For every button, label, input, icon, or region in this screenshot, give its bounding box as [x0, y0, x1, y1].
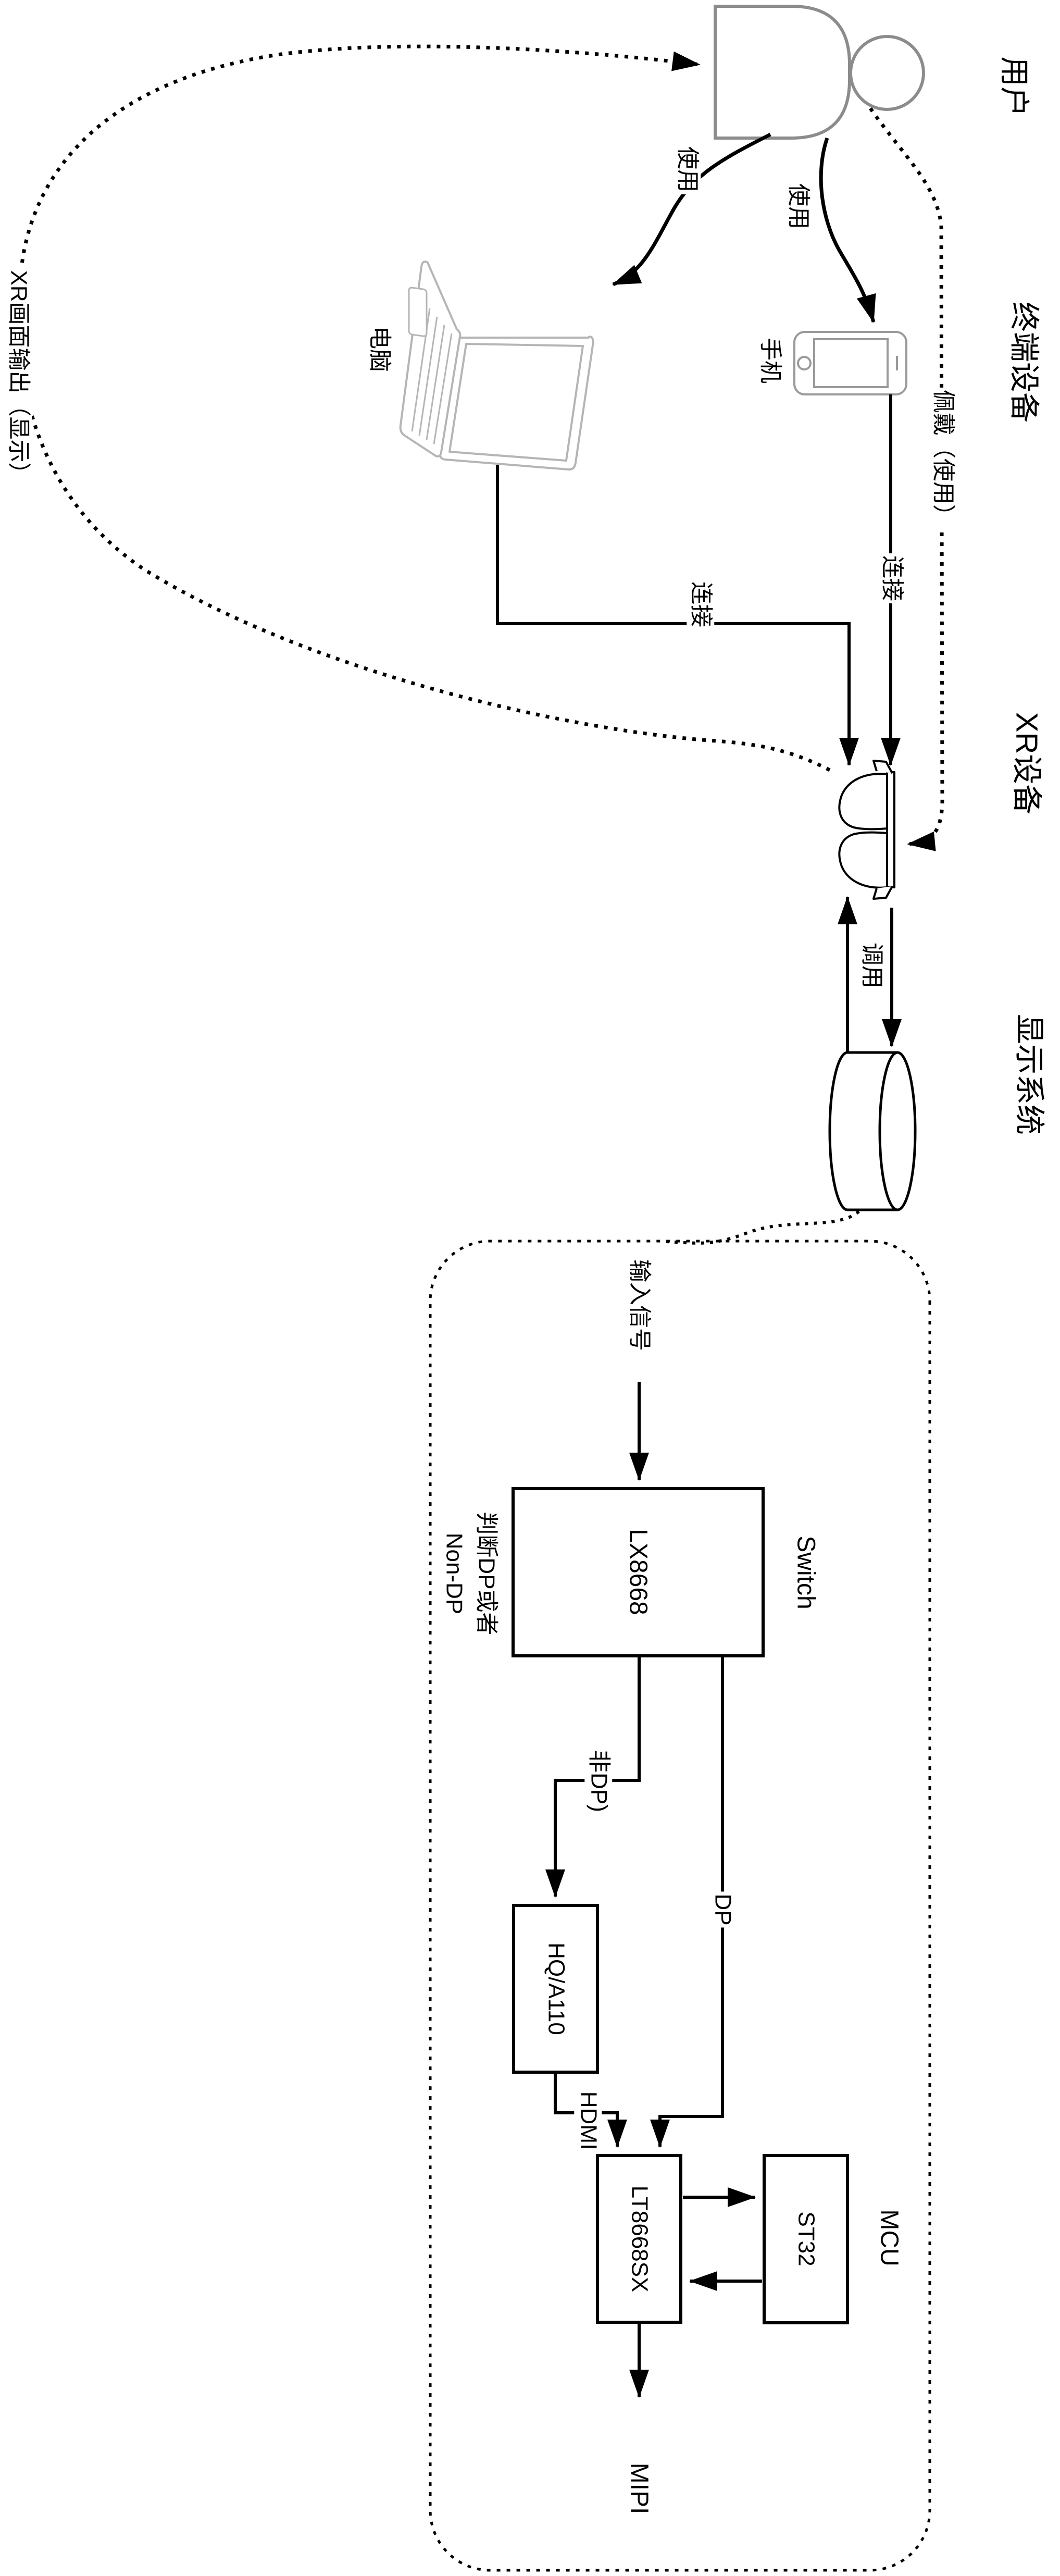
use-phone-label: 使用: [784, 181, 812, 231]
diagram-page: 用户 终端设备 XR设备 显示系统 电脑 手机 使用 使用 佩戴（使用） 连接 …: [0, 0, 1060, 2576]
glasses-top-bar: [887, 772, 894, 887]
cylinder-top: [880, 1052, 915, 1210]
mcu-label: MCU: [874, 2207, 904, 2268]
use-phone-arrow: [821, 138, 874, 322]
invoke-label: 调用: [858, 940, 886, 990]
switch-label: Switch: [791, 1533, 820, 1611]
hqa110-label: HQ/A110: [542, 1940, 570, 2037]
judge-label-line1: 判断DP或者: [472, 1509, 500, 1637]
lane-header-display: 显示系统: [1011, 1012, 1047, 1137]
glasses-right-lens: [839, 833, 887, 888]
connect-phone-label: 连接: [878, 553, 906, 603]
user-body-shape: [715, 6, 850, 138]
laptop-trackpad: [409, 287, 427, 337]
xr-glasses-icon: [839, 761, 894, 899]
non-dp-label: 非DP): [585, 1748, 613, 1814]
hdmi-label: HDMI: [575, 2089, 602, 2152]
connect-pc-arrow: [497, 465, 849, 765]
wear-label: 佩戴（使用）: [929, 388, 957, 529]
judge-label-line2: Non-DP: [440, 1531, 468, 1617]
laptop-screen-inner: [450, 344, 583, 461]
rotated-diagram-canvas: 用户 终端设备 XR设备 显示系统 电脑 手机 使用 使用 佩戴（使用） 连接 …: [0, 0, 1060, 2576]
use-pc-label: 使用: [674, 144, 701, 194]
lane-header-terminal: 终端设备: [1006, 300, 1042, 425]
pc-label: 电脑: [366, 324, 393, 374]
lt8668sx-label: LT8668SX: [626, 2184, 653, 2295]
st32-label: ST32: [792, 2209, 820, 2268]
dp-label: DP: [709, 1891, 737, 1927]
display-system-cylinder: [830, 1052, 915, 1210]
user-icon: [715, 6, 924, 138]
phone-label: 手机: [756, 336, 784, 386]
xr-output-label: XR画面输出（显示）: [5, 268, 32, 487]
expansion-dotted-connector: [666, 1211, 859, 1243]
lx8668-label: LX8668: [623, 1527, 653, 1617]
user-head-circle: [851, 36, 924, 109]
phone-icon: [794, 332, 906, 394]
connect-pc-label: 连接: [687, 579, 715, 629]
phone-home-button: [798, 357, 810, 369]
display-subsystem-dashed-box: [430, 1241, 930, 2570]
mipi-label: MIPI: [624, 2461, 654, 2517]
lane-header-xr: XR设备: [1008, 710, 1044, 817]
laptop-icon: [401, 262, 593, 469]
diagram-artwork: [0, 0, 1060, 2576]
lane-header-user: 用户: [996, 54, 1032, 119]
phone-screen: [814, 339, 888, 387]
input-signal-label: 输入信号: [626, 1257, 653, 1353]
glasses-left-lens: [839, 774, 887, 829]
